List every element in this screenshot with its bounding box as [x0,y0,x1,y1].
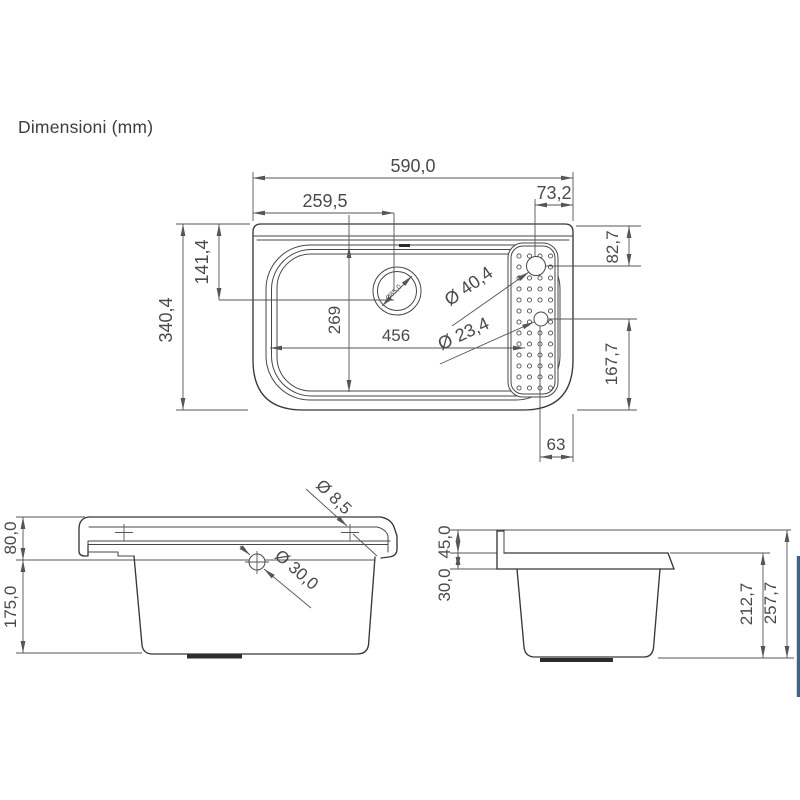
dim-rim-thickness: 30,0 [435,568,454,601]
front-recess [88,541,134,556]
side-rim-chamfer [668,553,674,569]
tap-hole [527,257,546,276]
dim-tap-diameter: Ø 40,4 [441,262,497,309]
dim-overall-height: 257,7 [761,582,780,625]
dim-basin-inner-depth: 269 [325,306,344,334]
overflow-hole [534,312,548,326]
dim-backsplash-height: 45,0 [435,525,454,558]
dim-basin-inner-width: 456 [382,326,410,345]
leader-side-hole-a [240,546,250,555]
dim-fixing-hole-diameter: Ø 8,5 [312,476,355,519]
dim-side-hole-diameter: Ø 30,0 [271,546,322,594]
dim-overflow-to-bottom: 167,7 [602,343,621,386]
front-view-drawing: 80,0 175,0 Ø 30, [1,476,397,657]
side-bowl [517,569,660,657]
technical-drawing-page: Dimensioni (mm) [0,0,800,800]
side-view-drawing: 45,0 30,0 212,7 257,7 [435,525,794,660]
dim-overall-width: 590,0 [390,156,435,176]
dim-bowl-height: 175,0 [1,586,20,629]
dim-rim-height: 80,0 [1,521,20,554]
dim-tap-from-top: 82,7 [603,230,622,263]
dim-drain-from-left: 259,5 [302,191,347,211]
dim-overflow-from-right: 63 [547,435,566,454]
front-bowl [134,556,375,654]
technical-drawing-canvas: 590,0 259,5 73,2 340,4 141,4 269 456 Ø 4… [0,0,800,800]
dim-bowl-depth: 212,7 [737,583,756,626]
dim-tap-from-right: 73,2 [536,183,571,203]
front-right-lip [381,517,397,558]
dim-overall-depth: 340,4 [156,297,176,342]
front-right-lip-inner [377,527,388,552]
top-view-drawing: 590,0 259,5 73,2 340,4 141,4 269 456 Ø 4… [156,156,641,462]
dim-drain-from-top: 141,4 [192,239,212,284]
